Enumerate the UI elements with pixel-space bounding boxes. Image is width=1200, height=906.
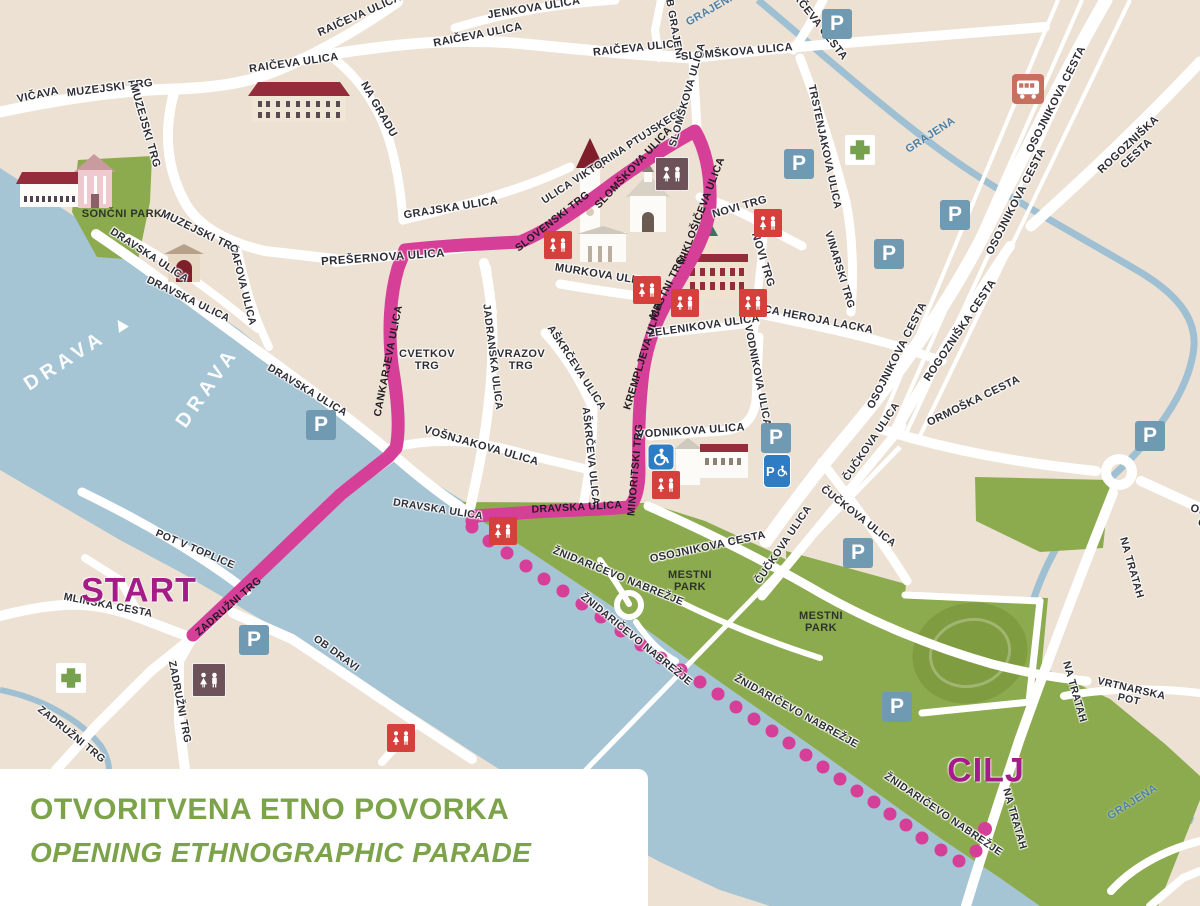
- route-dot: [483, 535, 496, 548]
- route-dot: [595, 611, 608, 624]
- route-dot: [466, 521, 479, 534]
- minorite-monastery: [674, 438, 748, 485]
- route-dot: [834, 773, 847, 786]
- castle-building: [248, 82, 350, 122]
- route-dot: [501, 547, 514, 560]
- route-dot: [748, 713, 761, 726]
- riverside-building: [16, 172, 84, 207]
- title-panel: OTVORITVENA ETNO POVORKA OPENING ETHNOGR…: [0, 769, 648, 906]
- route-dot: [800, 749, 813, 762]
- route-dot: [783, 737, 796, 750]
- route-dot: [953, 855, 966, 868]
- route-dot: [851, 785, 864, 798]
- route-dot: [615, 625, 628, 638]
- map-canvas: VIČAVAMUZEJSKI TRGMUZEJSKI TRGMUZEJSKI T…: [0, 0, 1200, 906]
- route-dot: [655, 652, 668, 665]
- route-dot: [635, 639, 648, 652]
- route-dot: [970, 845, 983, 858]
- route-dot: [900, 819, 913, 832]
- route-dot: [978, 822, 992, 836]
- page-subtitle: OPENING ETHNOGRAPHIC PARADE: [30, 837, 531, 869]
- route-dot: [520, 560, 533, 573]
- route-dot: [576, 598, 589, 611]
- route-dot: [557, 585, 570, 598]
- route-dot: [868, 796, 881, 809]
- route-dot: [694, 676, 707, 689]
- route-dot: [675, 664, 688, 677]
- route-dot: [935, 844, 948, 857]
- route-dot: [712, 688, 725, 701]
- route-dot: [538, 573, 551, 586]
- route-dot: [817, 761, 830, 774]
- route-dot: [884, 808, 897, 821]
- route-dot: [916, 832, 929, 845]
- route-dot: [766, 725, 779, 738]
- page-title: OTVORITVENA ETNO POVORKA: [30, 793, 509, 827]
- route-dot: [730, 701, 743, 714]
